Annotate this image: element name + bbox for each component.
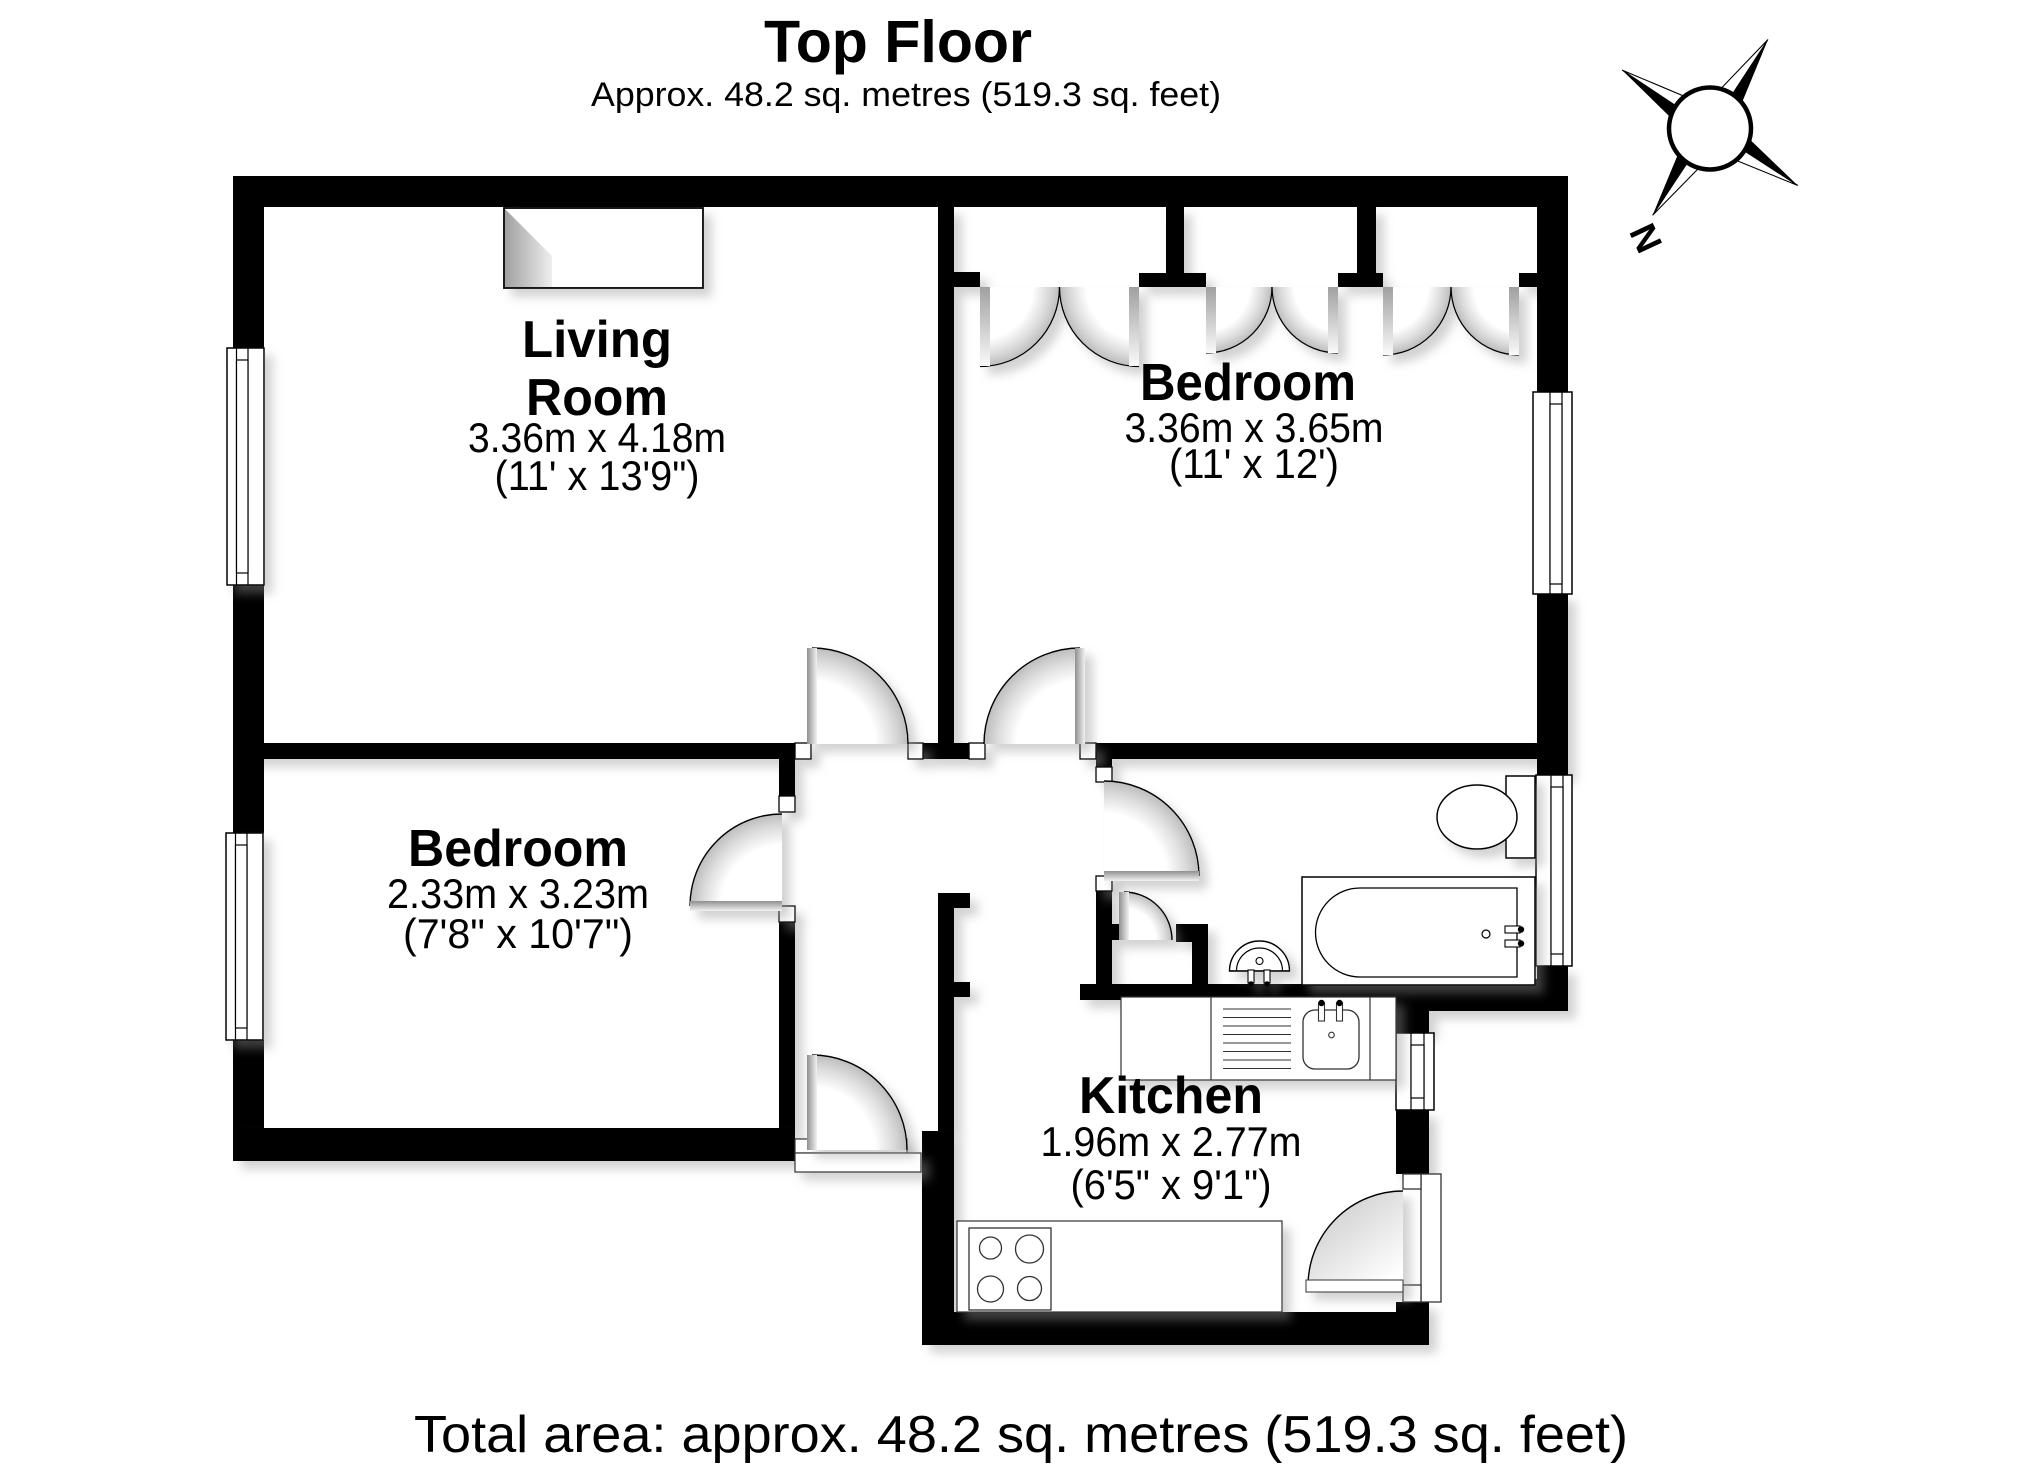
svg-text:1.96m x 2.77m: 1.96m x 2.77m [1041, 1118, 1302, 1165]
svg-text:Top Floor: Top Floor [764, 9, 1032, 75]
svg-text:(11' x 13'9"): (11' x 13'9") [495, 452, 700, 499]
svg-text:Kitchen: Kitchen [1079, 1067, 1263, 1125]
svg-text:Living: Living [522, 311, 672, 369]
svg-text:(7'8" x 10'7"): (7'8" x 10'7") [403, 910, 633, 957]
svg-text:Total area: approx. 48.2 sq. m: Total area: approx. 48.2 sq. metres (519… [414, 1406, 1628, 1464]
svg-text:(11' x 12'): (11' x 12') [1169, 440, 1339, 487]
svg-text:Approx. 48.2 sq. metres (519.3: Approx. 48.2 sq. metres (519.3 sq. feet) [591, 76, 1221, 114]
svg-text:(6'5" x 9'1"): (6'5" x 9'1") [1071, 1161, 1272, 1208]
